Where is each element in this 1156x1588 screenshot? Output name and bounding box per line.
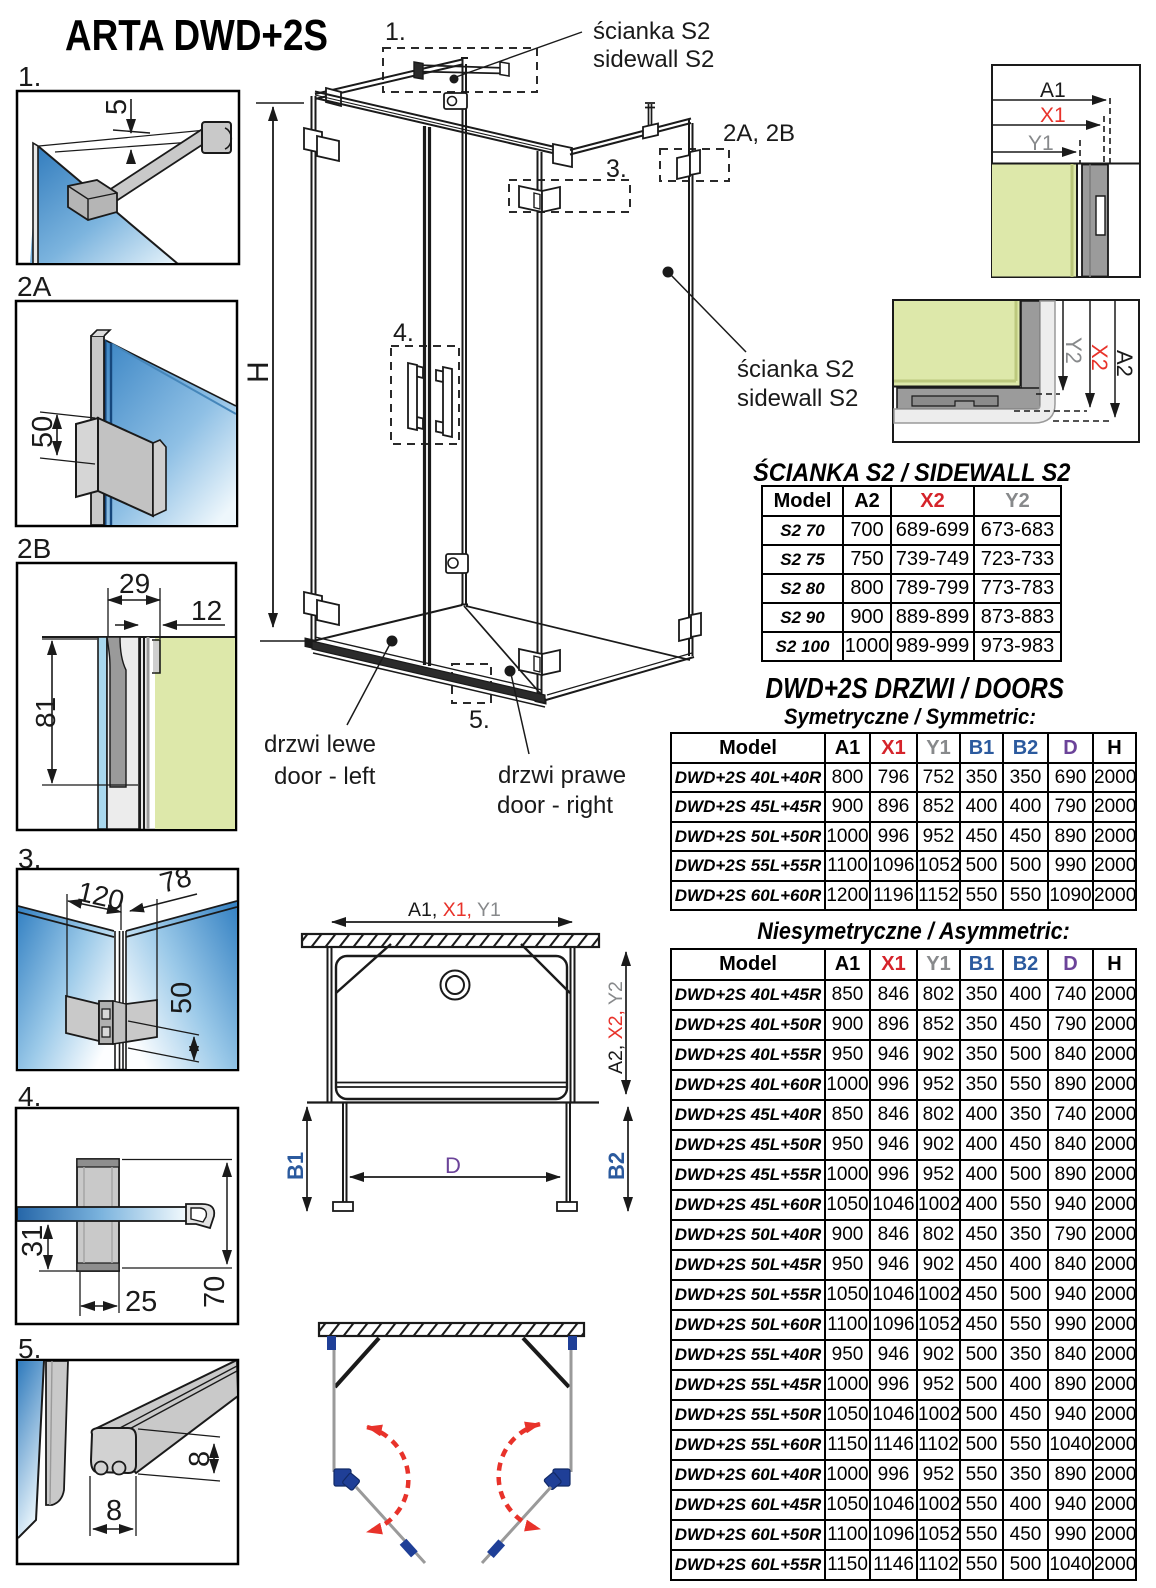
svg-text:50: 50 xyxy=(27,416,59,448)
svg-text:X1: X1 xyxy=(1040,104,1066,127)
svg-text:drzwi prawe: drzwi prawe xyxy=(498,762,626,789)
svg-text:B1: B1 xyxy=(283,1152,308,1180)
svg-text:8: 8 xyxy=(184,1451,216,1467)
svg-text:D: D xyxy=(445,1153,461,1178)
svg-text:A1, X1, Y1: A1, X1, Y1 xyxy=(408,899,501,921)
svg-text:sidewall S2: sidewall S2 xyxy=(593,46,714,73)
svg-text:81: 81 xyxy=(30,697,61,728)
svg-text:sidewall S2: sidewall S2 xyxy=(737,385,858,412)
svg-text:1.: 1. xyxy=(385,18,406,46)
svg-text:31: 31 xyxy=(17,1225,49,1257)
svg-text:A2: A2 xyxy=(1112,350,1137,377)
svg-text:ścianka S2: ścianka S2 xyxy=(737,356,854,383)
svg-text:door - right: door - right xyxy=(497,792,613,819)
svg-text:5: 5 xyxy=(101,99,133,115)
svg-text:A2, X2, Y2: A2, X2, Y2 xyxy=(605,981,627,1074)
svg-text:70: 70 xyxy=(199,1276,231,1308)
svg-text:ścianka S2: ścianka S2 xyxy=(593,18,710,45)
svg-text:25: 25 xyxy=(125,1286,157,1318)
svg-text:2B: 2B xyxy=(17,533,51,564)
svg-text:29: 29 xyxy=(119,568,150,599)
svg-text:5.: 5. xyxy=(469,706,490,734)
svg-text:50: 50 xyxy=(166,982,198,1014)
svg-text:B2: B2 xyxy=(604,1152,629,1180)
svg-text:A1: A1 xyxy=(1040,79,1066,102)
svg-text:door - left: door - left xyxy=(274,763,376,790)
svg-text:8: 8 xyxy=(106,1495,122,1527)
svg-text:4.: 4. xyxy=(393,319,414,347)
svg-text:Y2: Y2 xyxy=(1061,337,1086,364)
svg-text:3.: 3. xyxy=(606,155,627,183)
svg-text:12: 12 xyxy=(191,595,222,626)
svg-text:ARTA DWD+2S: ARTA DWD+2S xyxy=(65,11,328,60)
svg-text:2A, 2B: 2A, 2B xyxy=(723,120,795,147)
svg-text:1.: 1. xyxy=(18,61,41,92)
svg-text:drzwi lewe: drzwi lewe xyxy=(264,731,376,758)
svg-text:2A: 2A xyxy=(17,271,52,302)
svg-text:H: H xyxy=(242,361,275,383)
svg-text:X2: X2 xyxy=(1087,344,1112,371)
